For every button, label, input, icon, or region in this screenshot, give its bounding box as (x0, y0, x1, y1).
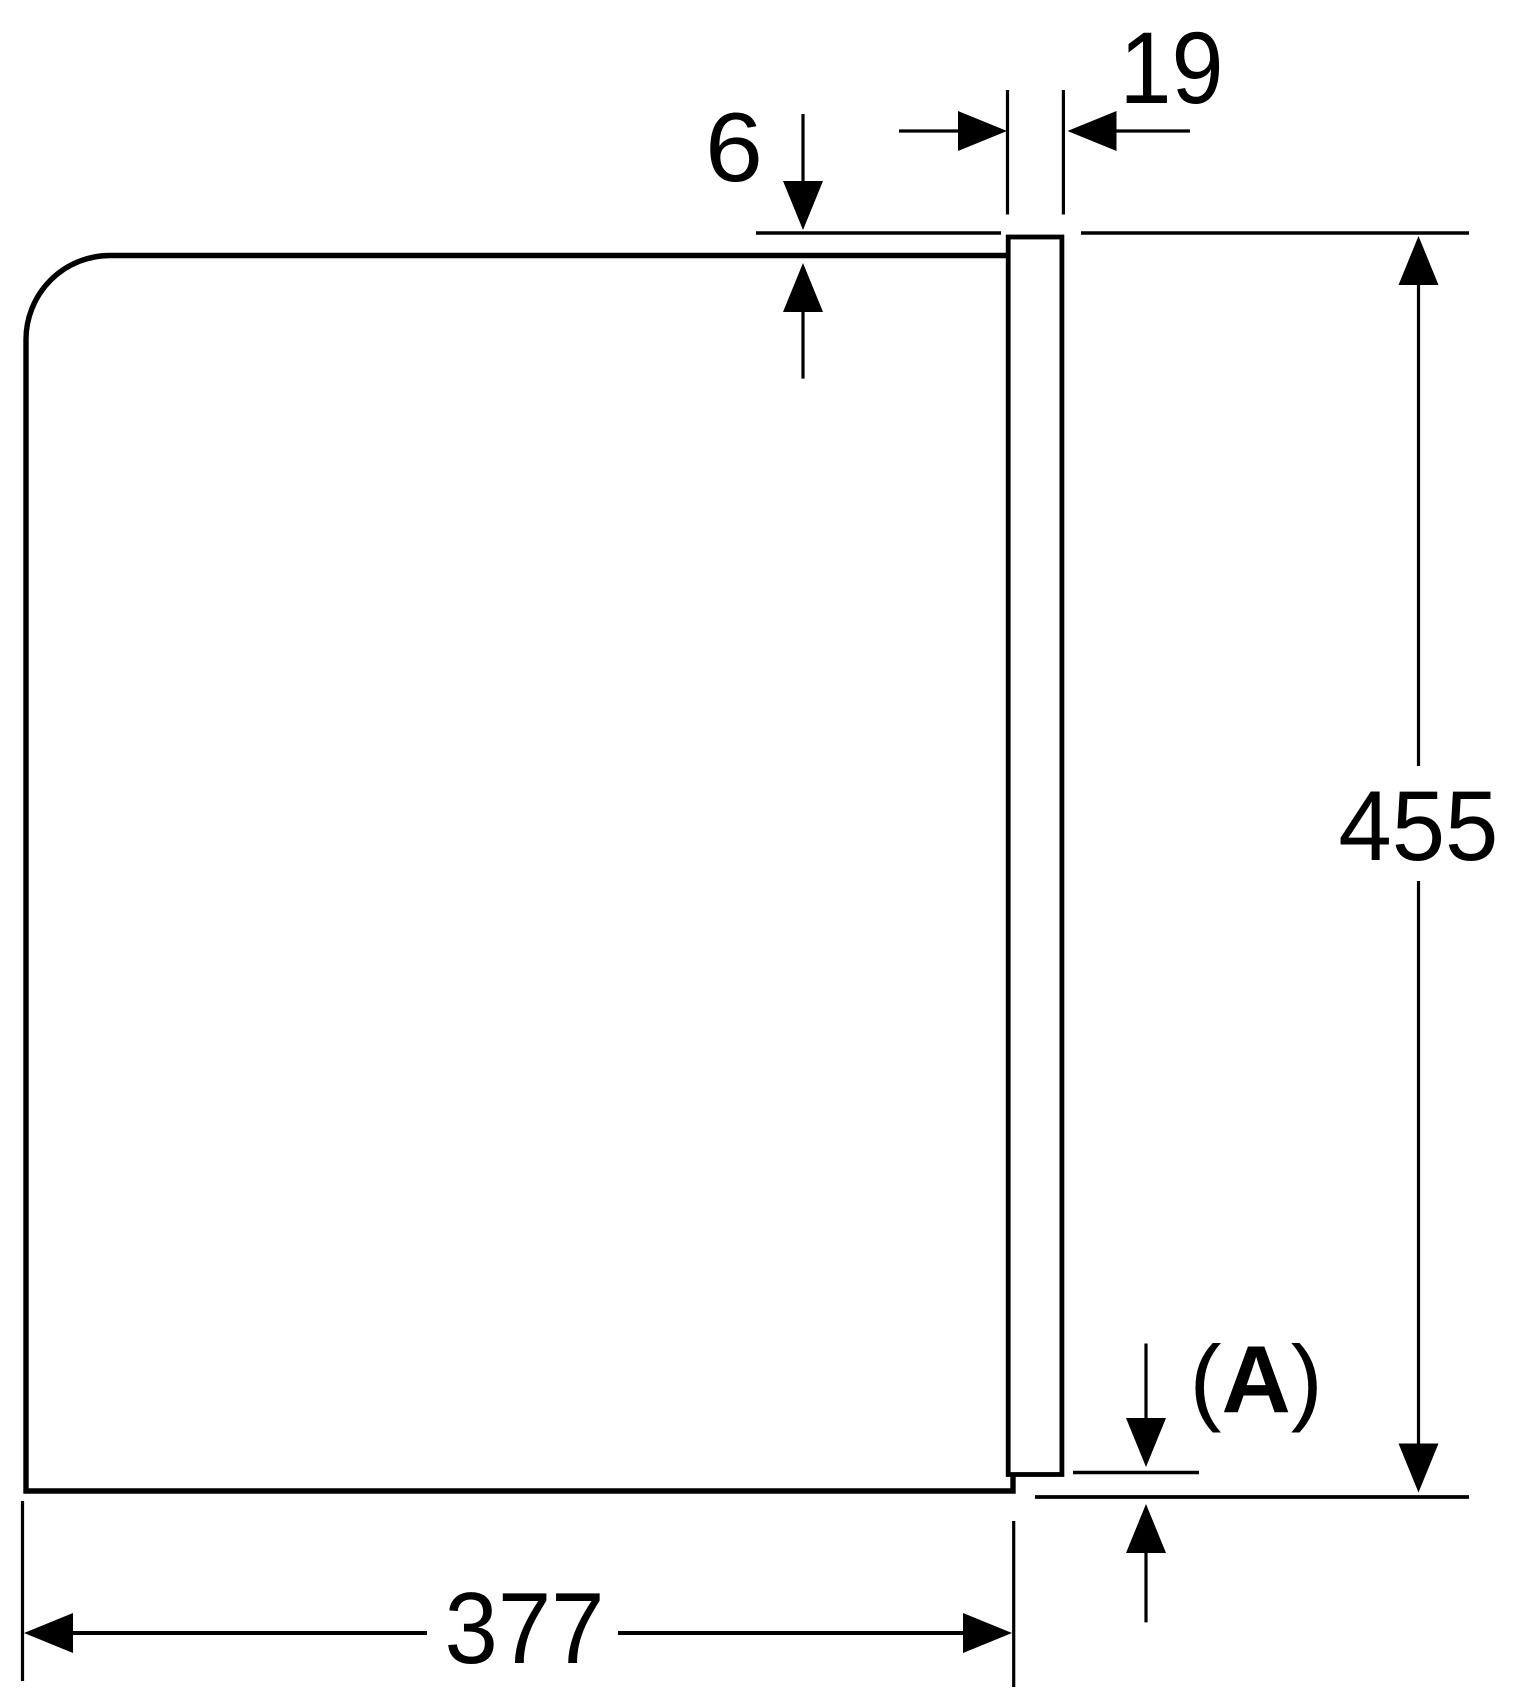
svg-text:455: 455 (1338, 770, 1498, 881)
svg-text:377: 377 (445, 1573, 605, 1685)
svg-text:(A): (A) (1190, 1326, 1323, 1433)
svg-text:19: 19 (1120, 11, 1224, 125)
svg-text:6: 6 (705, 92, 763, 202)
